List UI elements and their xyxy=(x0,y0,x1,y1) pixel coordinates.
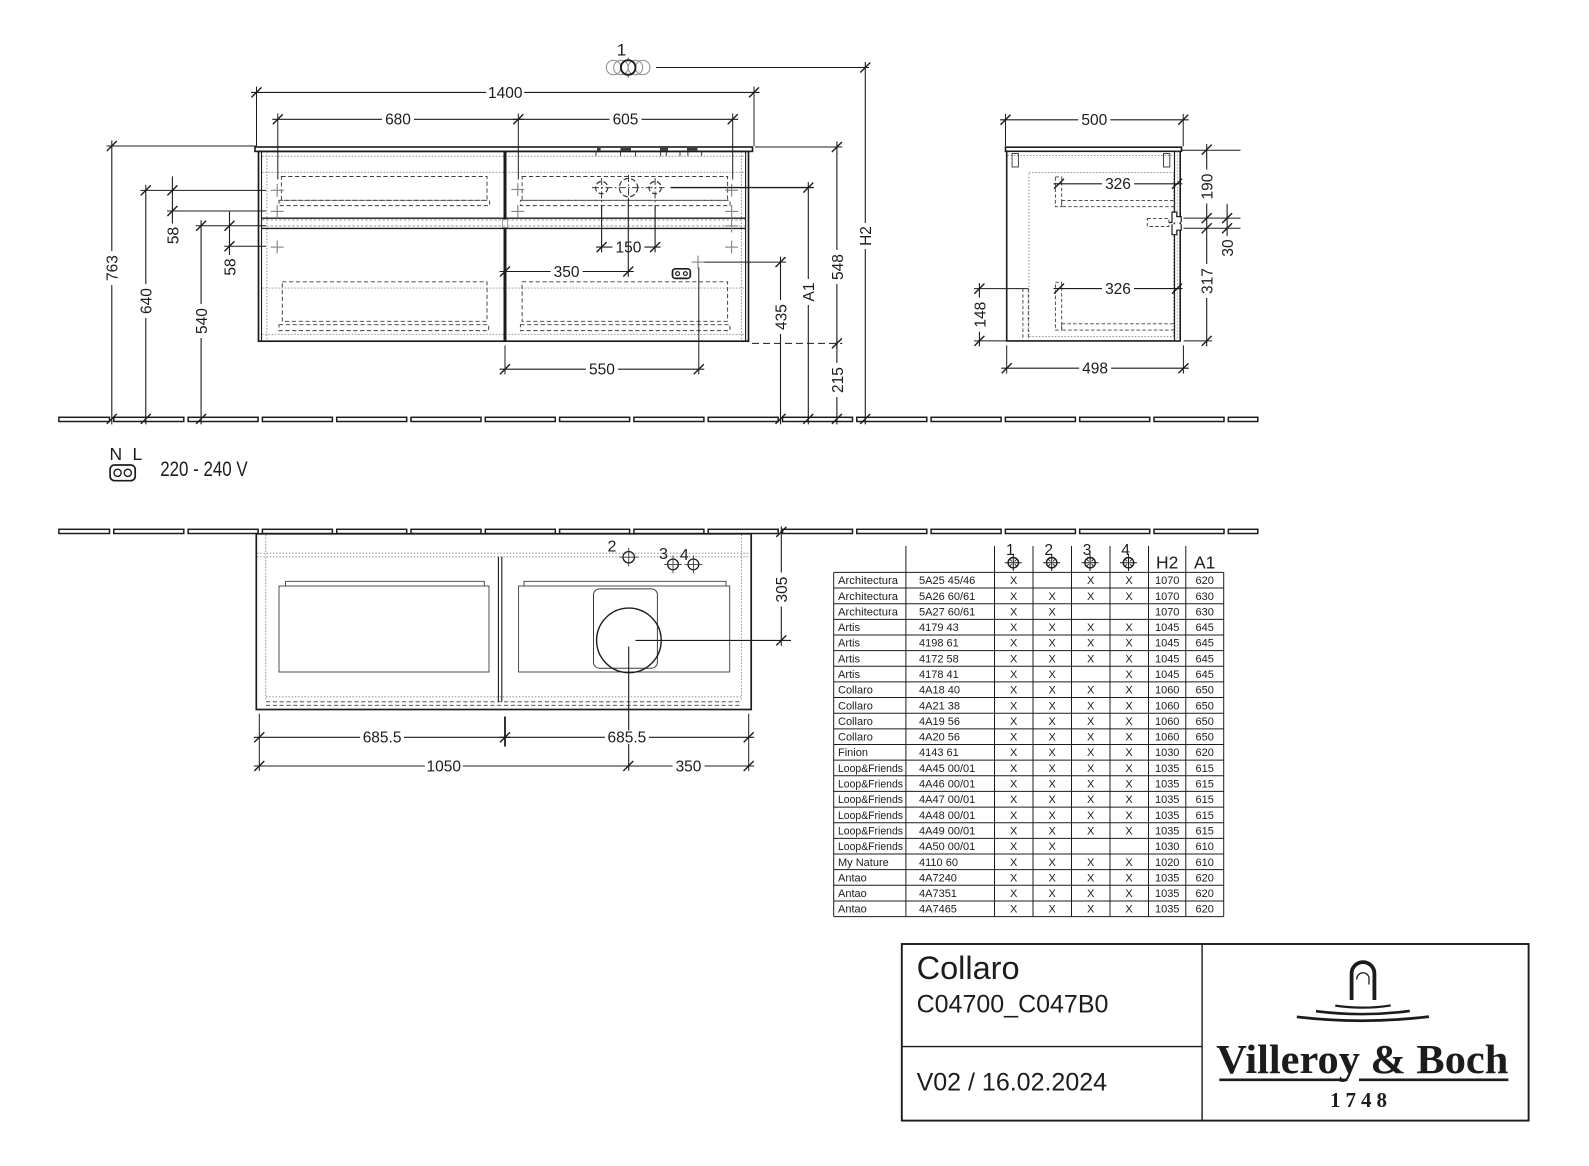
svg-text:X: X xyxy=(1087,763,1095,775)
svg-text:X: X xyxy=(1087,638,1095,650)
svg-text:Collaro: Collaro xyxy=(917,950,1020,986)
svg-text:A1: A1 xyxy=(801,283,818,302)
svg-text:X: X xyxy=(1010,779,1018,791)
svg-text:Collaro: Collaro xyxy=(838,685,873,697)
svg-text:X: X xyxy=(1087,810,1095,822)
svg-text:X: X xyxy=(1010,763,1018,775)
svg-text:326: 326 xyxy=(1105,176,1131,193)
svg-text:650: 650 xyxy=(1196,700,1214,712)
svg-text:4198 61: 4198 61 xyxy=(919,638,959,650)
svg-text:58: 58 xyxy=(165,227,182,244)
svg-text:H2: H2 xyxy=(1156,552,1178,572)
svg-text:X: X xyxy=(1010,732,1018,744)
svg-text:X: X xyxy=(1087,700,1095,712)
svg-text:4A18 40: 4A18 40 xyxy=(919,685,960,697)
svg-text:X: X xyxy=(1087,622,1095,634)
svg-text:Loop&Friends: Loop&Friends xyxy=(838,779,903,791)
svg-text:1035: 1035 xyxy=(1155,826,1179,838)
svg-text:X: X xyxy=(1125,826,1133,838)
svg-text:1070: 1070 xyxy=(1155,591,1179,603)
svg-text:X: X xyxy=(1010,826,1018,838)
svg-text:X: X xyxy=(1125,857,1133,869)
svg-text:Loop&Friends: Loop&Friends xyxy=(838,810,903,822)
svg-text:1030: 1030 xyxy=(1155,841,1179,853)
svg-text:Antao: Antao xyxy=(838,872,867,884)
svg-text:1060: 1060 xyxy=(1155,685,1179,697)
svg-text:X: X xyxy=(1125,904,1133,916)
svg-text:Finion: Finion xyxy=(838,747,868,759)
svg-text:190: 190 xyxy=(1199,173,1216,199)
svg-text:1060: 1060 xyxy=(1155,716,1179,728)
svg-text:4178 41: 4178 41 xyxy=(919,669,959,681)
svg-text:615: 615 xyxy=(1196,794,1214,806)
svg-text:Artis: Artis xyxy=(838,638,861,650)
svg-text:Artis: Artis xyxy=(838,622,861,634)
svg-text:1045: 1045 xyxy=(1155,622,1179,634)
svg-text:X: X xyxy=(1010,653,1018,665)
svg-text:H2: H2 xyxy=(858,226,875,246)
svg-text:X: X xyxy=(1049,779,1057,791)
svg-text:1035: 1035 xyxy=(1155,810,1179,822)
svg-text:X: X xyxy=(1049,888,1057,900)
svg-text:1: 1 xyxy=(617,41,626,60)
svg-text:Antao: Antao xyxy=(838,904,867,916)
svg-text:763: 763 xyxy=(104,255,121,281)
svg-text:630: 630 xyxy=(1196,591,1214,603)
svg-text:1070: 1070 xyxy=(1155,606,1179,618)
svg-text:Collaro: Collaro xyxy=(838,700,873,712)
svg-text:435: 435 xyxy=(773,304,790,330)
svg-text:350: 350 xyxy=(554,264,580,281)
svg-text:58: 58 xyxy=(222,258,239,275)
svg-text:N: N xyxy=(110,444,123,464)
svg-text:X: X xyxy=(1125,763,1133,775)
svg-text:4172 58: 4172 58 xyxy=(919,653,959,665)
svg-text:X: X xyxy=(1125,794,1133,806)
svg-text:X: X xyxy=(1125,638,1133,650)
svg-text:1020: 1020 xyxy=(1155,857,1179,869)
svg-text:4A47 00/01: 4A47 00/01 xyxy=(919,794,975,806)
svg-text:X: X xyxy=(1087,685,1095,697)
svg-text:X: X xyxy=(1049,700,1057,712)
svg-text:X: X xyxy=(1125,716,1133,728)
svg-text:3: 3 xyxy=(659,546,668,563)
svg-text:X: X xyxy=(1125,732,1133,744)
svg-text:4A20 56: 4A20 56 xyxy=(919,732,960,744)
svg-text:X: X xyxy=(1049,606,1057,618)
svg-text:630: 630 xyxy=(1196,606,1214,618)
svg-text:X: X xyxy=(1010,638,1018,650)
svg-text:4A49 00/01: 4A49 00/01 xyxy=(919,826,975,838)
svg-text:650: 650 xyxy=(1196,732,1214,744)
svg-text:X: X xyxy=(1010,904,1018,916)
svg-text:645: 645 xyxy=(1196,622,1214,634)
svg-text:1035: 1035 xyxy=(1155,904,1179,916)
svg-text:4143 61: 4143 61 xyxy=(919,747,959,759)
svg-text:650: 650 xyxy=(1196,716,1214,728)
svg-text:680: 680 xyxy=(385,112,411,129)
svg-text:620: 620 xyxy=(1196,904,1214,916)
svg-text:Architectura: Architectura xyxy=(838,575,899,587)
svg-text:X: X xyxy=(1125,653,1133,665)
svg-text:1045: 1045 xyxy=(1155,669,1179,681)
svg-text:X: X xyxy=(1125,872,1133,884)
svg-text:X: X xyxy=(1049,669,1057,681)
svg-text:1035: 1035 xyxy=(1155,779,1179,791)
svg-text:X: X xyxy=(1010,810,1018,822)
svg-text:498: 498 xyxy=(1082,361,1108,378)
svg-text:X: X xyxy=(1049,622,1057,634)
svg-text:615: 615 xyxy=(1196,826,1214,838)
svg-text:X: X xyxy=(1010,622,1018,634)
svg-text:645: 645 xyxy=(1196,669,1214,681)
svg-text:620: 620 xyxy=(1196,575,1214,587)
svg-text:X: X xyxy=(1049,747,1057,759)
svg-text:4110 60: 4110 60 xyxy=(919,857,958,869)
svg-text:X: X xyxy=(1010,591,1018,603)
svg-text:X: X xyxy=(1049,872,1057,884)
svg-text:X: X xyxy=(1125,747,1133,759)
svg-text:5A26 60/61: 5A26 60/61 xyxy=(919,591,975,603)
svg-text:1045: 1045 xyxy=(1155,653,1179,665)
svg-text:X: X xyxy=(1010,669,1018,681)
svg-text:1035: 1035 xyxy=(1155,763,1179,775)
svg-text:1400: 1400 xyxy=(488,85,523,102)
svg-text:2: 2 xyxy=(608,539,617,556)
svg-text:X: X xyxy=(1049,638,1057,650)
svg-text:Loop&Friends: Loop&Friends xyxy=(838,826,903,838)
svg-text:X: X xyxy=(1049,763,1057,775)
svg-text:685.5: 685.5 xyxy=(608,730,647,747)
svg-text:1748: 1748 xyxy=(1330,1088,1392,1112)
svg-text:X: X xyxy=(1087,857,1095,869)
svg-text:615: 615 xyxy=(1196,779,1214,791)
svg-text:Artis: Artis xyxy=(838,669,861,681)
svg-text:X: X xyxy=(1087,888,1095,900)
svg-text:X: X xyxy=(1010,794,1018,806)
svg-text:548: 548 xyxy=(829,254,846,280)
svg-text:1035: 1035 xyxy=(1155,794,1179,806)
svg-text:605: 605 xyxy=(613,112,639,129)
svg-text:X: X xyxy=(1049,794,1057,806)
svg-text:500: 500 xyxy=(1081,112,1107,129)
svg-text:4A7351: 4A7351 xyxy=(919,888,957,900)
svg-text:1060: 1060 xyxy=(1155,700,1179,712)
svg-text:X: X xyxy=(1125,700,1133,712)
svg-text:X: X xyxy=(1010,857,1018,869)
svg-text:Artis: Artis xyxy=(838,653,861,665)
svg-text:X: X xyxy=(1049,904,1057,916)
svg-text:X: X xyxy=(1010,841,1018,853)
svg-text:Collaro: Collaro xyxy=(838,716,873,728)
svg-text:615: 615 xyxy=(1196,810,1214,822)
svg-text:317: 317 xyxy=(1199,268,1216,294)
svg-text:1035: 1035 xyxy=(1155,872,1179,884)
svg-text:645: 645 xyxy=(1196,638,1214,650)
svg-text:350: 350 xyxy=(676,758,702,775)
svg-text:4A50 00/01: 4A50 00/01 xyxy=(919,841,975,853)
svg-text:X: X xyxy=(1049,810,1057,822)
svg-text:1060: 1060 xyxy=(1155,732,1179,744)
svg-text:X: X xyxy=(1125,622,1133,634)
svg-text:C04700_C047B0: C04700_C047B0 xyxy=(917,990,1109,1018)
svg-text:X: X xyxy=(1087,575,1095,587)
svg-text:5A27 60/61: 5A27 60/61 xyxy=(919,606,975,618)
svg-text:Architectura: Architectura xyxy=(838,591,899,603)
svg-text:X: X xyxy=(1087,904,1095,916)
svg-text:540: 540 xyxy=(194,308,211,334)
svg-text:685.5: 685.5 xyxy=(363,730,402,747)
svg-text:X: X xyxy=(1010,747,1018,759)
svg-text:X: X xyxy=(1010,685,1018,697)
svg-text:Villeroy & Boch: Villeroy & Boch xyxy=(1216,1036,1508,1082)
svg-text:620: 620 xyxy=(1196,872,1214,884)
svg-text:305: 305 xyxy=(774,577,791,603)
svg-text:4A7465: 4A7465 xyxy=(919,904,957,916)
svg-text:X: X xyxy=(1087,732,1095,744)
svg-text:Loop&Friends: Loop&Friends xyxy=(838,794,903,806)
svg-text:X: X xyxy=(1049,826,1057,838)
svg-text:X: X xyxy=(1125,888,1133,900)
svg-text:4: 4 xyxy=(680,547,689,564)
svg-text:X: X xyxy=(1087,872,1095,884)
svg-text:X: X xyxy=(1049,857,1057,869)
svg-text:4A48 00/01: 4A48 00/01 xyxy=(919,810,975,822)
svg-text:X: X xyxy=(1049,732,1057,744)
svg-text:X: X xyxy=(1087,716,1095,728)
svg-text:X: X xyxy=(1010,700,1018,712)
svg-text:Antao: Antao xyxy=(838,888,867,900)
svg-text:Architectura: Architectura xyxy=(838,606,899,618)
svg-text:L: L xyxy=(133,444,143,464)
svg-text:550: 550 xyxy=(589,362,615,379)
svg-text:X: X xyxy=(1125,669,1133,681)
svg-text:4A7240: 4A7240 xyxy=(919,872,957,884)
svg-text:1070: 1070 xyxy=(1155,575,1179,587)
svg-text:4179 43: 4179 43 xyxy=(919,622,959,634)
svg-text:620: 620 xyxy=(1196,747,1214,759)
svg-text:30: 30 xyxy=(1220,239,1237,257)
svg-text:X: X xyxy=(1049,591,1057,603)
svg-text:326: 326 xyxy=(1105,281,1131,298)
svg-text:148: 148 xyxy=(972,302,989,328)
svg-text:220 - 240 V: 220 - 240 V xyxy=(160,457,248,481)
svg-text:Loop&Friends: Loop&Friends xyxy=(838,841,903,853)
svg-text:X: X xyxy=(1087,747,1095,759)
svg-text:650: 650 xyxy=(1196,685,1214,697)
svg-text:1030: 1030 xyxy=(1155,747,1179,759)
svg-text:X: X xyxy=(1049,653,1057,665)
svg-text:X: X xyxy=(1010,716,1018,728)
svg-text:X: X xyxy=(1087,653,1095,665)
svg-text:640: 640 xyxy=(138,288,155,314)
svg-text:X: X xyxy=(1087,794,1095,806)
svg-text:645: 645 xyxy=(1196,653,1214,665)
svg-text:1045: 1045 xyxy=(1155,638,1179,650)
svg-text:215: 215 xyxy=(829,367,846,393)
svg-text:620: 620 xyxy=(1196,888,1214,900)
svg-text:Loop&Friends: Loop&Friends xyxy=(838,763,903,775)
svg-text:X: X xyxy=(1049,685,1057,697)
svg-text:1035: 1035 xyxy=(1155,888,1179,900)
svg-text:X: X xyxy=(1125,575,1133,587)
svg-text:X: X xyxy=(1125,779,1133,791)
svg-text:4A45 00/01: 4A45 00/01 xyxy=(919,763,975,775)
svg-text:X: X xyxy=(1125,810,1133,822)
svg-text:X: X xyxy=(1010,888,1018,900)
svg-text:Collaro: Collaro xyxy=(838,732,873,744)
svg-text:X: X xyxy=(1049,716,1057,728)
svg-text:V02 / 16.02.2024: V02 / 16.02.2024 xyxy=(917,1069,1108,1097)
svg-text:X: X xyxy=(1125,685,1133,697)
svg-text:X: X xyxy=(1010,606,1018,618)
svg-text:X: X xyxy=(1125,591,1133,603)
svg-text:610: 610 xyxy=(1196,857,1214,869)
svg-text:X: X xyxy=(1087,591,1095,603)
svg-text:My Nature: My Nature xyxy=(838,857,889,869)
svg-text:1050: 1050 xyxy=(427,758,462,775)
svg-text:X: X xyxy=(1010,575,1018,587)
svg-text:X: X xyxy=(1010,872,1018,884)
svg-text:4A21 38: 4A21 38 xyxy=(919,700,960,712)
svg-text:X: X xyxy=(1087,826,1095,838)
svg-text:4A46 00/01: 4A46 00/01 xyxy=(919,779,975,791)
svg-text:4A19 56: 4A19 56 xyxy=(919,716,960,728)
svg-text:A1: A1 xyxy=(1194,552,1215,572)
svg-text:X: X xyxy=(1049,841,1057,853)
svg-text:610: 610 xyxy=(1196,841,1214,853)
svg-text:615: 615 xyxy=(1196,763,1214,775)
svg-text:X: X xyxy=(1087,779,1095,791)
svg-text:5A25 45/46: 5A25 45/46 xyxy=(919,575,975,587)
